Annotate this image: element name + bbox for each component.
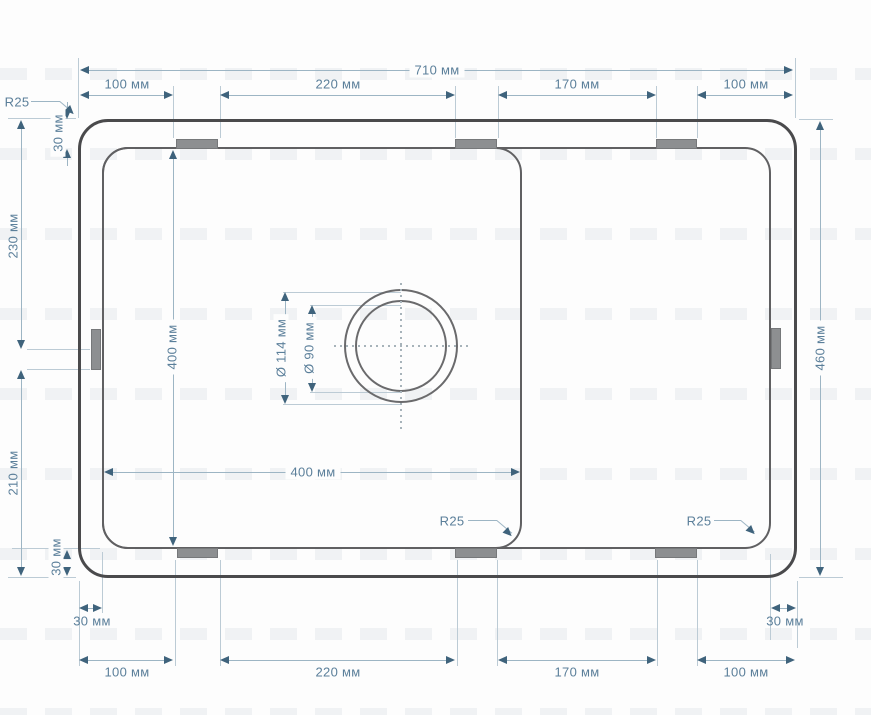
- dim-arrow: [784, 66, 793, 74]
- dim-label-edge-top-left: 30 мм: [51, 109, 66, 156]
- dim-label-top-seg2: 220 мм: [316, 77, 361, 92]
- dim-arrow: [697, 656, 706, 664]
- dim-label-bottom-seg2: 220 мм: [316, 665, 361, 680]
- dim-arrow: [647, 656, 656, 664]
- dim-arrow: [786, 656, 795, 664]
- mounting-tab: [177, 548, 218, 558]
- dim-line: [21, 374, 22, 572]
- dim-arrow: [816, 121, 824, 130]
- radius-label-bowl: R25: [440, 514, 465, 529]
- dim-arrow: [80, 91, 89, 99]
- dim-arrow: [93, 604, 102, 612]
- dim-line: [83, 660, 169, 661]
- radius-label-rim: R25: [687, 514, 712, 529]
- dim-arrow: [104, 468, 113, 476]
- mounting-tab: [176, 139, 218, 149]
- dim-arrow: [787, 604, 796, 612]
- dim-arrow: [771, 604, 780, 612]
- dim-arrow: [17, 567, 25, 576]
- extension-line: [78, 58, 79, 118]
- centerline-horizontal: [334, 345, 471, 347]
- dim-arrow: [511, 468, 520, 476]
- dim-label-top-seg3: 170 мм: [555, 77, 600, 92]
- dim-label-top-seg4: 100 мм: [724, 77, 769, 92]
- mounting-tab: [91, 329, 101, 370]
- dim-arrow: [281, 395, 289, 404]
- dim-arrow: [308, 305, 316, 314]
- dim-label-top-seg1: 100 мм: [105, 77, 150, 92]
- dim-label-left-lower: 210 мм: [6, 451, 21, 496]
- dim-line: [701, 95, 789, 96]
- dim-label-edge-bottom-right: 30 мм: [766, 614, 803, 629]
- sink-technical-drawing: 710 мм 100 мм 220 мм 170 мм 100 мм 100 м…: [0, 0, 871, 715]
- dim-arrow: [446, 91, 455, 99]
- dim-arrow: [784, 91, 793, 99]
- leader-line: [468, 520, 497, 521]
- dim-label-edge-bottom-left: 30 мм: [73, 614, 110, 629]
- dim-line: [67, 157, 68, 166]
- dim-label-bowl-depth: 400 мм: [165, 320, 180, 375]
- dim-arrow: [647, 91, 656, 99]
- dim-arrow: [63, 567, 71, 576]
- dim-line: [224, 660, 451, 661]
- dim-label-total-depth: 460 мм: [813, 321, 828, 376]
- dim-label-bottom-seg4: 100 мм: [724, 665, 769, 680]
- dim-label-total-width: 710 мм: [410, 63, 465, 78]
- mounting-tab: [455, 548, 497, 558]
- dim-line: [21, 124, 22, 345]
- mounting-tab: [771, 328, 781, 369]
- dim-arrow: [164, 91, 173, 99]
- dim-label-left-upper: 230 мм: [6, 214, 21, 259]
- dim-line: [84, 95, 169, 96]
- extension-line: [799, 577, 843, 578]
- dim-label-edge-bottom-left-v: 30 мм: [49, 533, 64, 580]
- extension-line: [795, 58, 796, 118]
- dim-arrow: [220, 656, 229, 664]
- dim-arrow: [697, 91, 706, 99]
- dim-arrow: [63, 550, 71, 559]
- dim-arrow: [220, 91, 229, 99]
- dim-label-bottom-seg3: 170 мм: [555, 665, 600, 680]
- dim-arrow: [80, 66, 89, 74]
- dim-arrow: [498, 91, 507, 99]
- radius-label-outer: R25: [5, 95, 30, 110]
- dim-arrow: [164, 656, 173, 664]
- dim-label-drain-outer: Ø 114 мм: [274, 314, 289, 382]
- mounting-tab: [455, 139, 497, 149]
- dim-arrow: [446, 656, 455, 664]
- dim-arrow: [816, 567, 824, 576]
- dim-line: [224, 95, 451, 96]
- dim-arrow: [281, 292, 289, 301]
- dim-arrow: [79, 656, 88, 664]
- centerline-vertical: [400, 283, 402, 429]
- mounting-tab: [656, 139, 697, 149]
- dim-label-bowl-width: 400 мм: [286, 465, 341, 480]
- dim-arrow: [498, 656, 507, 664]
- extension-line: [8, 577, 76, 578]
- dim-arrow: [17, 340, 25, 349]
- leader-line: [714, 520, 741, 521]
- leader-line: [31, 101, 60, 102]
- dim-label-bottom-seg1: 100 мм: [105, 665, 150, 680]
- dim-line: [701, 660, 791, 661]
- dim-line: [502, 95, 652, 96]
- dim-label-drain-inner: Ø 90 мм: [302, 317, 317, 379]
- dim-line: [502, 660, 652, 661]
- dim-arrow: [17, 370, 25, 379]
- extension-line: [799, 119, 833, 120]
- dim-arrow: [308, 383, 316, 392]
- dim-arrow: [79, 604, 88, 612]
- dim-arrow: [17, 120, 25, 129]
- mounting-tab: [655, 548, 697, 558]
- dim-arrow: [169, 537, 177, 546]
- dim-arrow: [169, 150, 177, 159]
